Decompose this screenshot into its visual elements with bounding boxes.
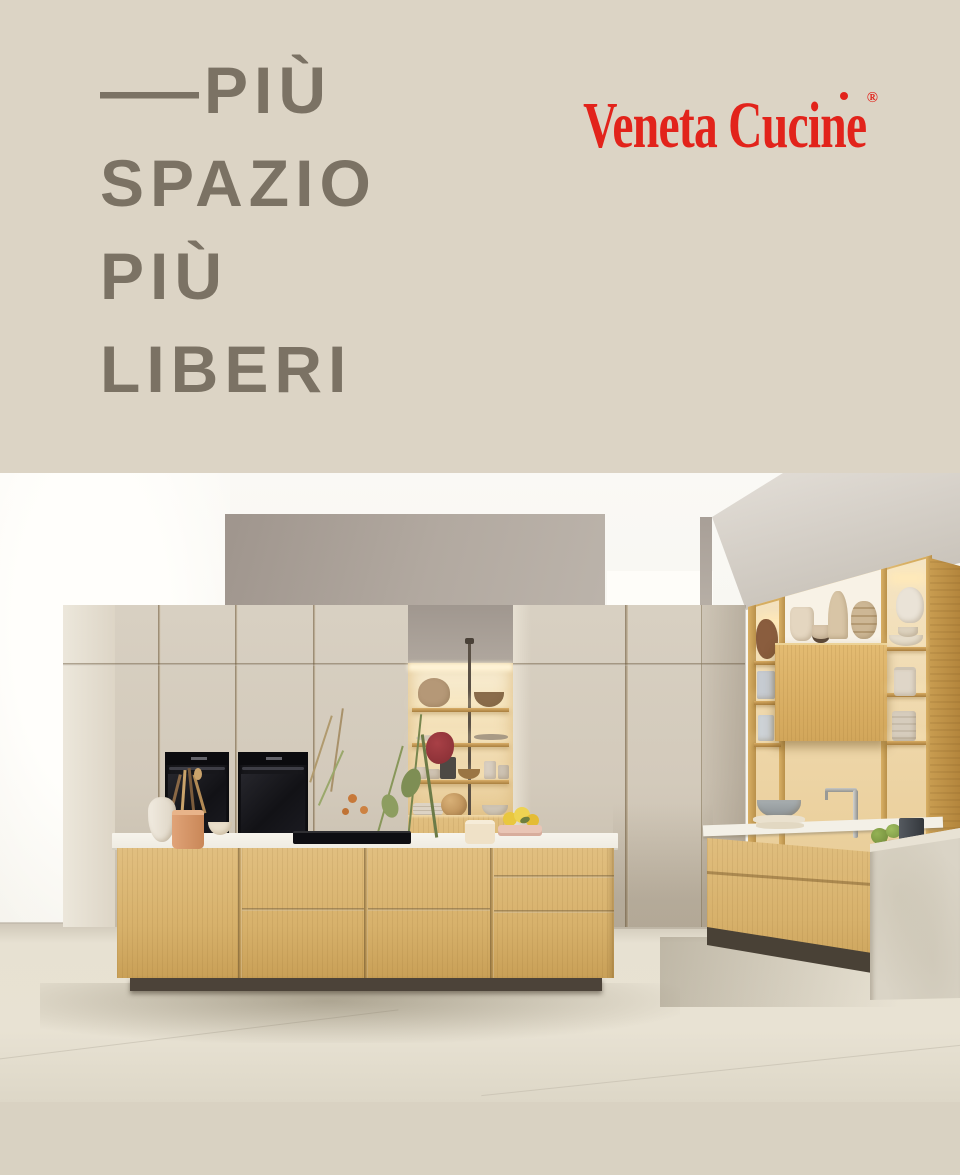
unit-led-glow: [888, 571, 928, 585]
bottle-vase: [828, 591, 848, 639]
sphere-vase: [896, 587, 924, 623]
oven-control-strip: [165, 752, 229, 765]
drawer-seam: [242, 908, 364, 911]
terracotta-pot: [172, 810, 204, 849]
orange-bud: [342, 808, 349, 815]
jar: [758, 715, 774, 741]
island-plinth: [130, 978, 602, 991]
leaf: [397, 766, 424, 800]
spoon-head: [194, 768, 202, 780]
faucet: [825, 788, 861, 840]
behind-island-shadow: [613, 803, 713, 929]
oven-display: [191, 757, 207, 760]
corner-wall-edge: [700, 517, 712, 609]
header-band: —PIÙ SPAZIO PIÙ LIBERI Veneta Cucine ®: [0, 0, 960, 473]
island-floor-shadow: [40, 983, 680, 1043]
red-bloom: [426, 732, 454, 764]
flower-arrangement: [318, 708, 478, 836]
lidded-jar: [894, 667, 916, 696]
drawer-seam: [494, 910, 614, 913]
headline-line-3: PIÙ: [100, 230, 377, 323]
jar: [498, 765, 509, 779]
shelf-pole-mount: [465, 638, 474, 644]
niche-led-glow: [408, 663, 513, 671]
island-seam: [364, 848, 368, 978]
orange-bud: [360, 806, 368, 814]
bright-wall-gap: [607, 571, 713, 609]
brand-logo-text: Veneta Cucine: [583, 96, 866, 156]
ceramic-vase: [418, 678, 450, 707]
unit-shelf: [754, 743, 781, 747]
round-vase: [851, 601, 877, 639]
advertisement-page: —PIÙ SPAZIO PIÙ LIBERI Veneta Cucine ®: [0, 0, 960, 1175]
pedestal-vase: [790, 607, 814, 641]
oven-control-strip: [238, 752, 308, 765]
unit-side-panel: [930, 548, 960, 878]
wall-oven-right: [238, 752, 308, 838]
headline: —PIÙ SPAZIO PIÙ LIBERI: [100, 44, 377, 416]
jar: [757, 671, 775, 699]
oven-display: [266, 757, 282, 760]
faucet-spout: [825, 791, 828, 800]
oven-glass-door: [241, 774, 305, 836]
registered-trademark: ®: [867, 90, 878, 107]
island-seam: [238, 848, 242, 978]
pink-tray: [498, 825, 542, 836]
island-seam: [490, 848, 494, 978]
grass-spike: [318, 750, 344, 806]
kitchen-photo: [0, 473, 960, 1102]
logo-e-dot: [840, 92, 848, 100]
plate: [756, 822, 804, 829]
jar: [484, 761, 496, 779]
bowl: [898, 627, 918, 637]
cabinet-side-panel: [63, 605, 115, 927]
oval-dish: [474, 734, 508, 740]
headline-line-4: LIBERI: [100, 323, 377, 416]
drawer-seam: [494, 875, 614, 878]
door-seam-horizontal: [63, 663, 408, 666]
headline-line-1: —PIÙ: [100, 44, 377, 137]
cream-box: [465, 820, 495, 844]
induction-hob: [293, 831, 411, 844]
footer-band: [0, 1102, 960, 1175]
unit-shelf: [887, 741, 926, 745]
drawer-seam: [368, 908, 490, 911]
sliding-door: [775, 643, 887, 741]
headline-dash: —: [100, 44, 199, 137]
niche-top-wall: [408, 605, 513, 663]
oven-handle: [242, 767, 304, 770]
floor-seam: [481, 1043, 960, 1096]
unit-shelf: [887, 647, 926, 651]
headline-word: PIÙ: [204, 53, 332, 127]
island-front: [117, 848, 614, 978]
headline-line-2: SPAZIO: [100, 137, 377, 230]
brand-logo: Veneta Cucine ®: [473, 96, 866, 166]
island-edge-shade: [606, 848, 614, 978]
orange-bud: [348, 794, 357, 803]
lidded-jar: [892, 711, 916, 741]
